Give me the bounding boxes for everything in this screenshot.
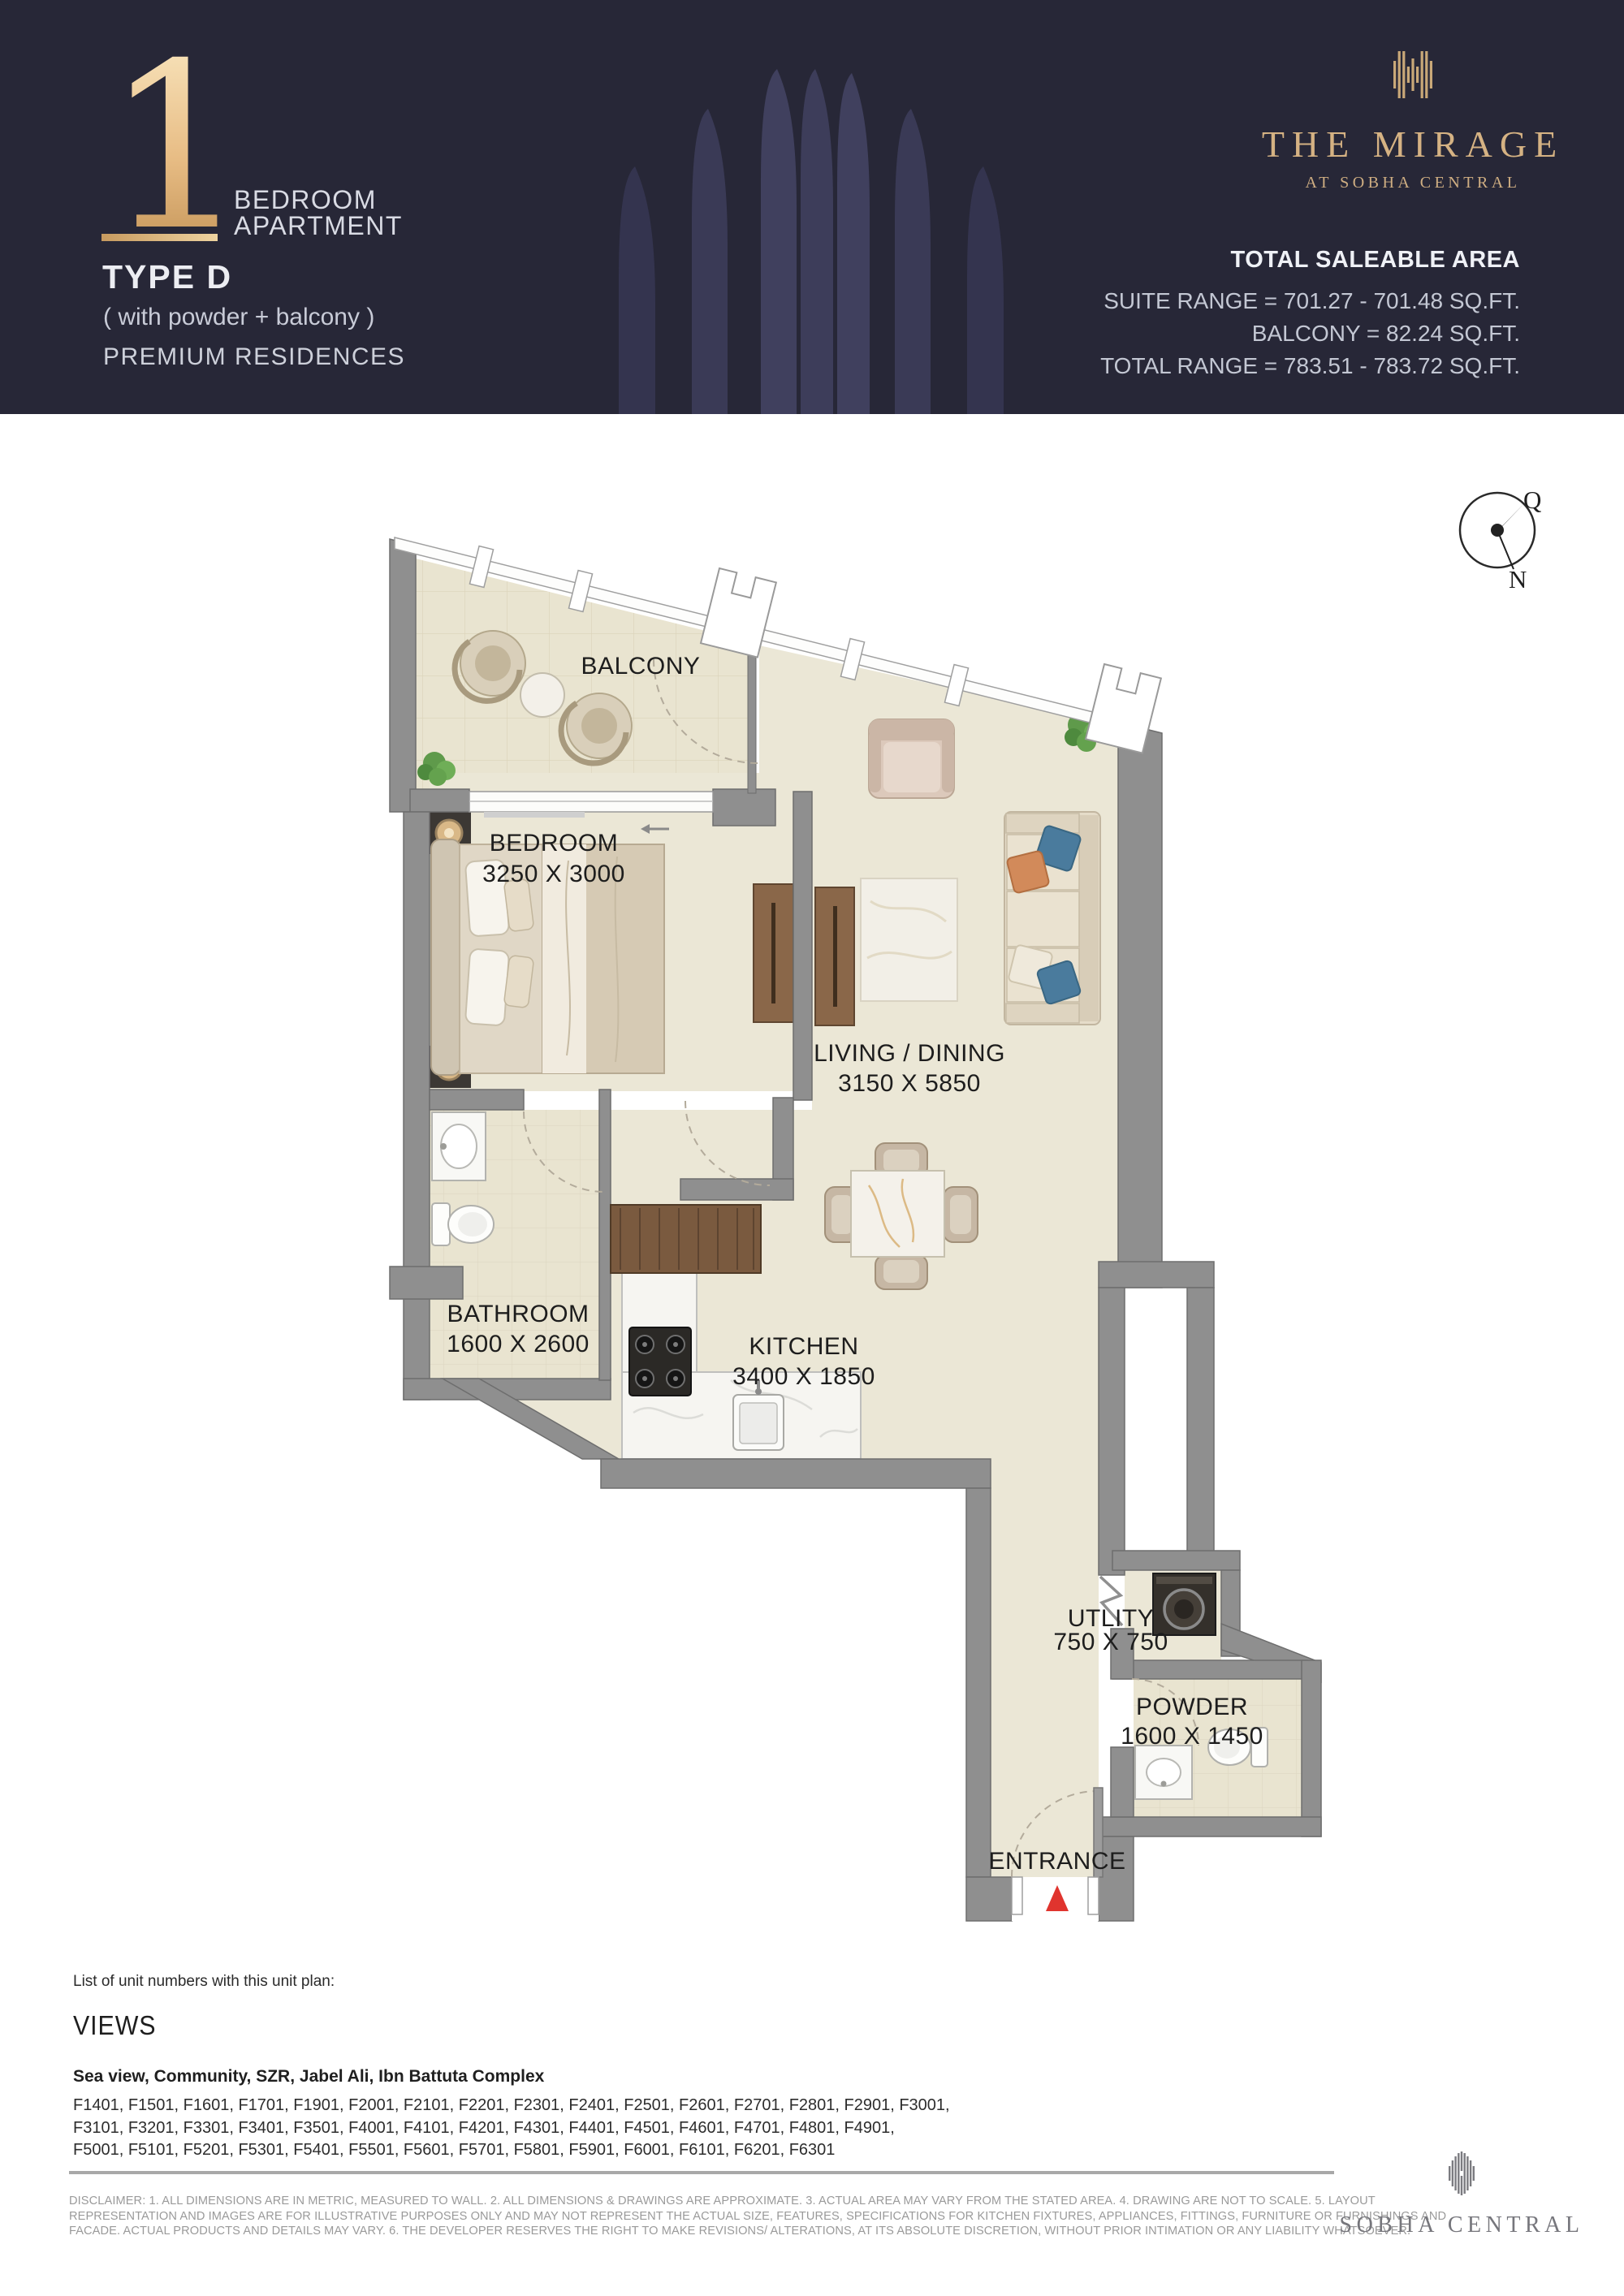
pillow-orange (1006, 850, 1049, 893)
bathroom-fixtures (432, 1112, 494, 1245)
bedroom-label: BEDROOM (490, 830, 619, 857)
living-dims: 3150 X 5850 (838, 1070, 981, 1097)
unit-numbers-line-3: F5001, F5101, F5201, F5301, F5401, F5501… (73, 2139, 950, 2162)
balcony-table (520, 673, 564, 717)
compass-needle-n (1497, 530, 1514, 569)
powder-dims: 1600 X 1450 (1121, 1723, 1263, 1750)
unit-list-caption: List of unit numbers with this unit plan… (73, 1973, 335, 1991)
unit-numbers-line-2: F3101, F3201, F3301, F3401, F3501, F4001… (73, 2117, 950, 2140)
entrance-threshold (1012, 1877, 1099, 1921)
bed-headboard (431, 839, 460, 1075)
sobha-brand-icon (1449, 2150, 1475, 2197)
floor-plan: BALCONY BEDROOM 3250 X 3000 LIVING / DIN… (0, 0, 1624, 2296)
armchair (869, 719, 954, 798)
views-title: VIEWS (73, 2010, 156, 2041)
sofa (1004, 812, 1100, 1025)
sobha-central-logo: SOBHA CENTRAL (1332, 2150, 1592, 2238)
bathroom-toilet (432, 1203, 494, 1245)
living-rug (861, 878, 957, 1001)
bedroom-dims: 3250 X 3000 (482, 861, 625, 887)
powder-label: POWDER (1136, 1694, 1248, 1720)
sobha-brand-name: SOBHA CENTRAL (1332, 2212, 1592, 2238)
unit-numbers-line-1: F1401, F1501, F1601, F1701, F1901, F2001… (73, 2095, 950, 2117)
utility-fixtures (1153, 1573, 1216, 1635)
unit-numbers-list: F1401, F1501, F1601, F1701, F1901, F2001… (73, 2095, 950, 2162)
bathroom-dims: 1600 X 2600 (447, 1331, 590, 1357)
disclaimer: DISCLAIMER: 1. ALL DIMENSIONS ARE IN MET… (69, 2194, 1446, 2239)
balcony-chair-1 (455, 631, 525, 701)
kitchen-dims: 3400 X 1850 (732, 1363, 875, 1390)
balcony-chair-2 (561, 693, 632, 763)
bathroom-label: BATHROOM (447, 1301, 589, 1327)
disclaimer-line-2: REPRESENTATION AND IMAGES ARE FOR ILLUST… (69, 2209, 1446, 2225)
utility-dims: 750 X 750 (1053, 1629, 1168, 1655)
balcony-label: BALCONY (581, 653, 701, 680)
entrance-label: ENTRANCE (988, 1848, 1125, 1875)
living-label: LIVING / DINING (814, 1040, 1005, 1067)
views-description: Sea view, Community, SZR, Jabel Ali, Ibn… (73, 2067, 544, 2087)
compass: Q N (1460, 486, 1541, 593)
bed-pillow-2 (465, 948, 509, 1025)
footer-divider (69, 2171, 1334, 2174)
stove (629, 1327, 691, 1396)
compass-q-label: Q (1523, 486, 1541, 514)
disclaimer-line-1: DISCLAIMER: 1. ALL DIMENSIONS ARE IN MET… (69, 2194, 1446, 2209)
kitchen-label: KITCHEN (749, 1333, 858, 1360)
disclaimer-line-3: FACADE. ACTUAL PRODUCTS AND DETAILS MAY … (69, 2224, 1446, 2239)
built-in-wardrobe (611, 1205, 761, 1273)
compass-n-label: N (1509, 565, 1527, 593)
facade-pillar-1 (701, 568, 776, 658)
